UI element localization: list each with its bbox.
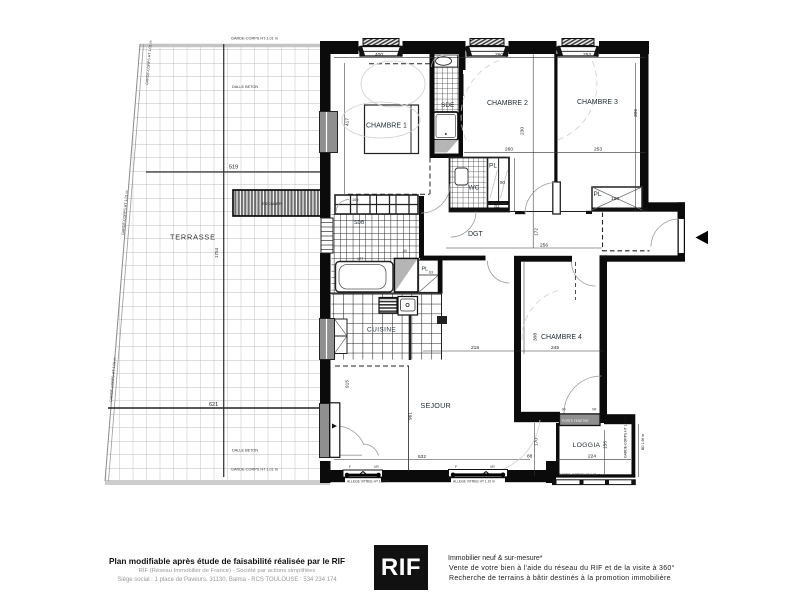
svg-text:40: 40 xyxy=(403,249,407,253)
svg-text:TERRASSE: TERRASSE xyxy=(170,233,216,242)
svg-text:100: 100 xyxy=(352,198,358,202)
svg-text:BD 1.96 m: BD 1.96 m xyxy=(641,434,645,450)
svg-text:260: 260 xyxy=(505,147,513,153)
svg-text:417: 417 xyxy=(345,118,351,126)
svg-text:GARDE-CORPS HT 1.01 m: GARDE-CORPS HT 1.01 m xyxy=(624,416,628,458)
svg-text:PL: PL xyxy=(422,267,429,273)
svg-text:DALLE BETON: DALLE BETON xyxy=(232,449,258,453)
svg-text:CHAMBRE 2: CHAMBRE 2 xyxy=(487,100,528,107)
svg-text:F: F xyxy=(455,465,457,469)
svg-text:172: 172 xyxy=(534,228,540,236)
svg-text:224: 224 xyxy=(588,454,596,460)
svg-text:F: F xyxy=(349,465,351,469)
svg-text:218: 218 xyxy=(471,345,479,351)
svg-text:253: 253 xyxy=(583,52,591,58)
svg-text:CHAMBRE 4: CHAMBRE 4 xyxy=(541,334,582,341)
svg-text:177: 177 xyxy=(357,257,363,261)
svg-text:CUISINE: CUISINE xyxy=(367,327,396,334)
svg-text:230: 230 xyxy=(520,127,526,135)
svg-text:PL: PL xyxy=(489,163,497,170)
svg-text:308: 308 xyxy=(533,333,539,341)
svg-text:90: 90 xyxy=(562,408,566,412)
svg-text:DALLE BETON: DALLE BETON xyxy=(232,85,258,89)
svg-text:170: 170 xyxy=(534,438,540,446)
svg-text:621: 621 xyxy=(209,402,218,408)
svg-text:211: 211 xyxy=(494,205,500,209)
svg-text:GARDE-CORPS HT 1.01 m: GARDE-CORPS HT 1.01 m xyxy=(231,37,278,41)
svg-text:CHAMBRE 3: CHAMBRE 3 xyxy=(577,99,618,106)
svg-text:519: 519 xyxy=(229,165,238,171)
svg-text:260: 260 xyxy=(495,52,503,58)
svg-text:150: 150 xyxy=(611,196,619,202)
svg-text:63: 63 xyxy=(429,271,433,275)
svg-text:DGT: DGT xyxy=(468,231,484,238)
svg-text:1754: 1754 xyxy=(214,247,219,258)
svg-text:961: 961 xyxy=(408,412,414,420)
svg-text:WC: WC xyxy=(469,185,480,192)
svg-text:ALLEGE VITREE HT 1.10 m: ALLEGE VITREE HT 1.10 m xyxy=(347,480,389,484)
svg-text:306: 306 xyxy=(633,109,639,117)
svg-text:ESCALIER: ESCALIER xyxy=(262,201,282,206)
svg-text:GARDE-CORPS HT 1.01 m: GARDE-CORPS HT 1.01 m xyxy=(559,473,601,477)
svg-text:532: 532 xyxy=(418,454,426,460)
svg-text:SDE: SDE xyxy=(441,102,455,109)
svg-text:LOGGIA: LOGGIA xyxy=(573,442,601,449)
svg-text:88: 88 xyxy=(527,454,533,460)
svg-text:VR: VR xyxy=(374,465,379,469)
svg-text:GARDE-CORPS HT 1.01 m: GARDE-CORPS HT 1.01 m xyxy=(231,468,278,472)
svg-text:VR: VR xyxy=(490,465,495,469)
svg-text:CHAMBRE 1: CHAMBRE 1 xyxy=(366,123,407,130)
svg-text:90: 90 xyxy=(500,180,506,185)
svg-text:253: 253 xyxy=(594,147,602,153)
svg-text:256: 256 xyxy=(540,243,548,249)
svg-text:400: 400 xyxy=(375,52,383,58)
svg-text:SEJOUR: SEJOUR xyxy=(421,401,451,410)
svg-text:VR: VR xyxy=(592,408,597,412)
svg-text:245: 245 xyxy=(551,345,559,351)
svg-text:ALLEGE VITREE HT 1.10 m: ALLEGE VITREE HT 1.10 m xyxy=(453,480,495,484)
svg-text:915: 915 xyxy=(345,380,351,388)
svg-text:SDB: SDB xyxy=(354,220,365,226)
svg-text:PL: PL xyxy=(594,191,602,198)
svg-text:PORTE FENETRE: PORTE FENETRE xyxy=(562,419,589,423)
svg-text:155: 155 xyxy=(603,441,609,449)
